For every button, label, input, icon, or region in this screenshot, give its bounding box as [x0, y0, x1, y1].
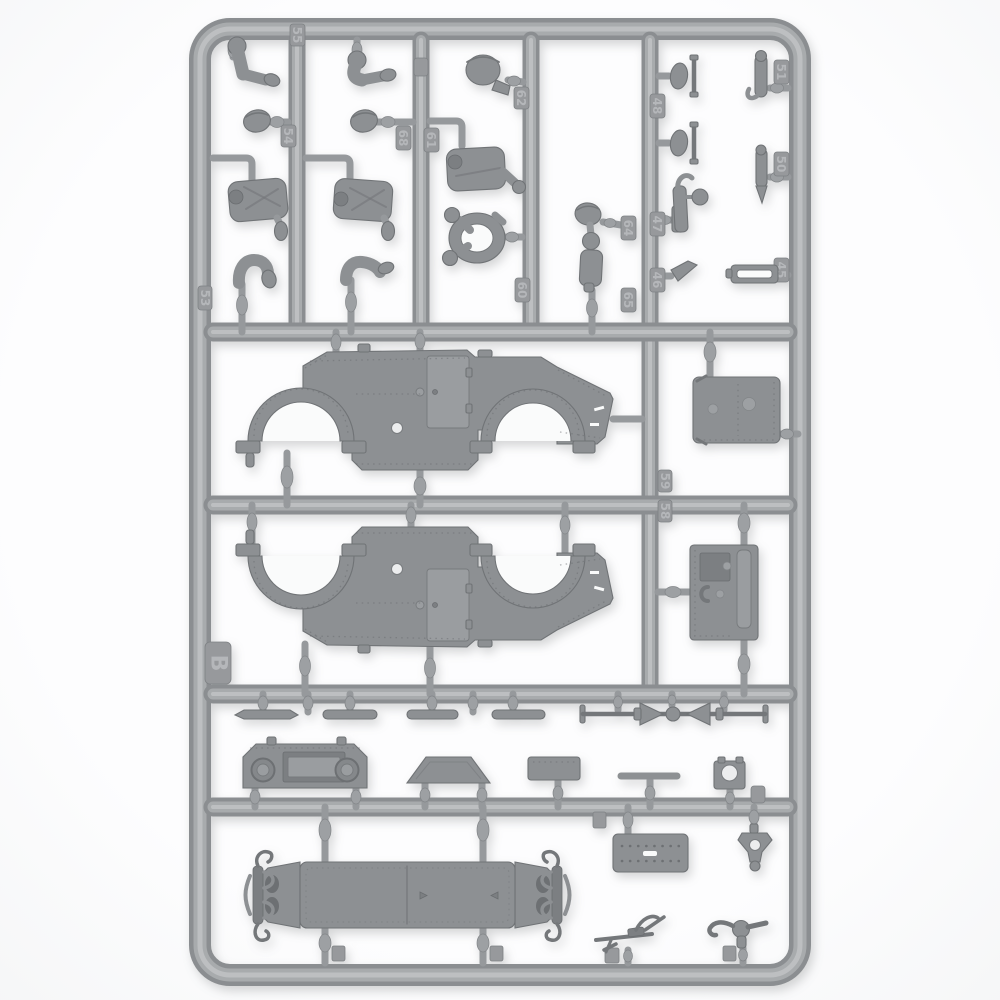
tag-51-label: 51	[774, 64, 788, 81]
gear-stick	[709, 921, 766, 949]
bracket-frame	[726, 265, 778, 283]
tag-60-label: 60	[515, 282, 529, 299]
gunner-torso	[446, 147, 526, 194]
tag-64-label: 64	[621, 220, 635, 237]
machine-gun	[596, 917, 664, 953]
helmeted-head	[466, 55, 510, 95]
photo-of-model-kit-sprue: 55 54 53 68 61 62 60 64 65 48 47 46 51 5…	[0, 0, 1000, 1000]
figure-torso-1	[227, 178, 288, 241]
tag-68-label: 68	[396, 130, 410, 147]
tag-54-label: 54	[281, 128, 295, 145]
small-lever-blade	[671, 261, 697, 281]
leaf-spring-3	[407, 710, 458, 719]
bent-arm-upper-2	[348, 51, 397, 83]
windshield-visor	[407, 757, 490, 783]
dashboard	[243, 737, 367, 788]
hull-side-upper	[236, 344, 613, 470]
tow-shackle	[738, 824, 772, 871]
foot-pedal-1	[669, 55, 698, 97]
axle-block	[714, 757, 745, 789]
tag-48-label: 48	[650, 98, 664, 115]
leaf-spring-4	[492, 710, 545, 719]
pointed-lever	[756, 145, 767, 203]
tag-55-label: 55	[290, 27, 304, 44]
tag-59-label: 59	[658, 473, 672, 490]
tag-blank	[414, 58, 428, 76]
tag-50-label: 50	[774, 156, 788, 173]
shift-figure	[579, 225, 603, 292]
perforated-plate	[613, 834, 688, 872]
leaf-spring-1	[235, 710, 298, 719]
side-door	[690, 545, 758, 640]
sprue-frame-b: 55 54 53 68 61 62 60 64 65 48 47 46 51 5…	[0, 0, 1000, 1000]
chassis-floor	[246, 852, 570, 941]
gear-lever	[748, 51, 767, 99]
tag-62-label: 62	[514, 90, 528, 107]
small-plate	[528, 757, 580, 780]
tag-46-label: 46	[650, 272, 664, 289]
tag-61-label: 61	[424, 132, 438, 149]
figure-head-2	[349, 107, 380, 134]
steering-wheel-arms	[443, 208, 506, 266]
figure-head-1	[242, 107, 273, 134]
leaf-spring-2	[323, 710, 377, 719]
tag-58-label: 58	[658, 503, 672, 520]
figure-torso-2	[333, 178, 395, 240]
bent-arm-lower-2	[346, 260, 395, 280]
hull-side-lower	[236, 527, 613, 653]
sprue-letter: B	[206, 655, 231, 672]
tag-53-label: 53	[198, 290, 212, 307]
hand-brake-lever	[672, 176, 708, 233]
tag-47-label: 47	[650, 216, 664, 233]
tag-65-label: 65	[621, 292, 635, 309]
roof-panel	[693, 376, 780, 444]
bent-arm-upper-1	[228, 37, 282, 88]
foot-pedal-2	[669, 122, 698, 164]
